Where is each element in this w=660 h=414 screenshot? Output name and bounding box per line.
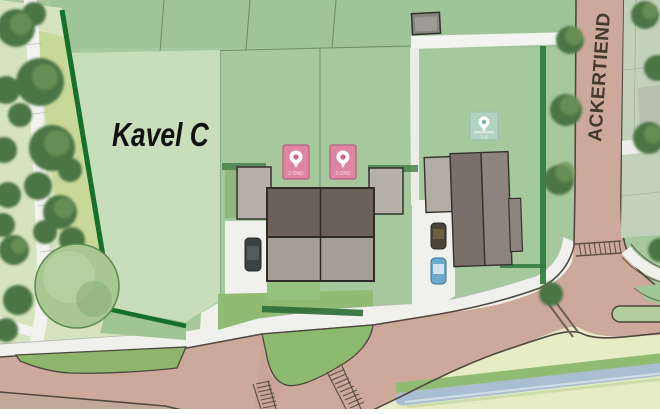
svg-text:Kavel C: Kavel C: [112, 117, 209, 153]
svg-text:2-OND: 2-OND: [288, 171, 304, 177]
svg-text:3·8: 3·8: [480, 135, 487, 141]
svg-text:2-OND: 2-OND: [335, 171, 351, 177]
